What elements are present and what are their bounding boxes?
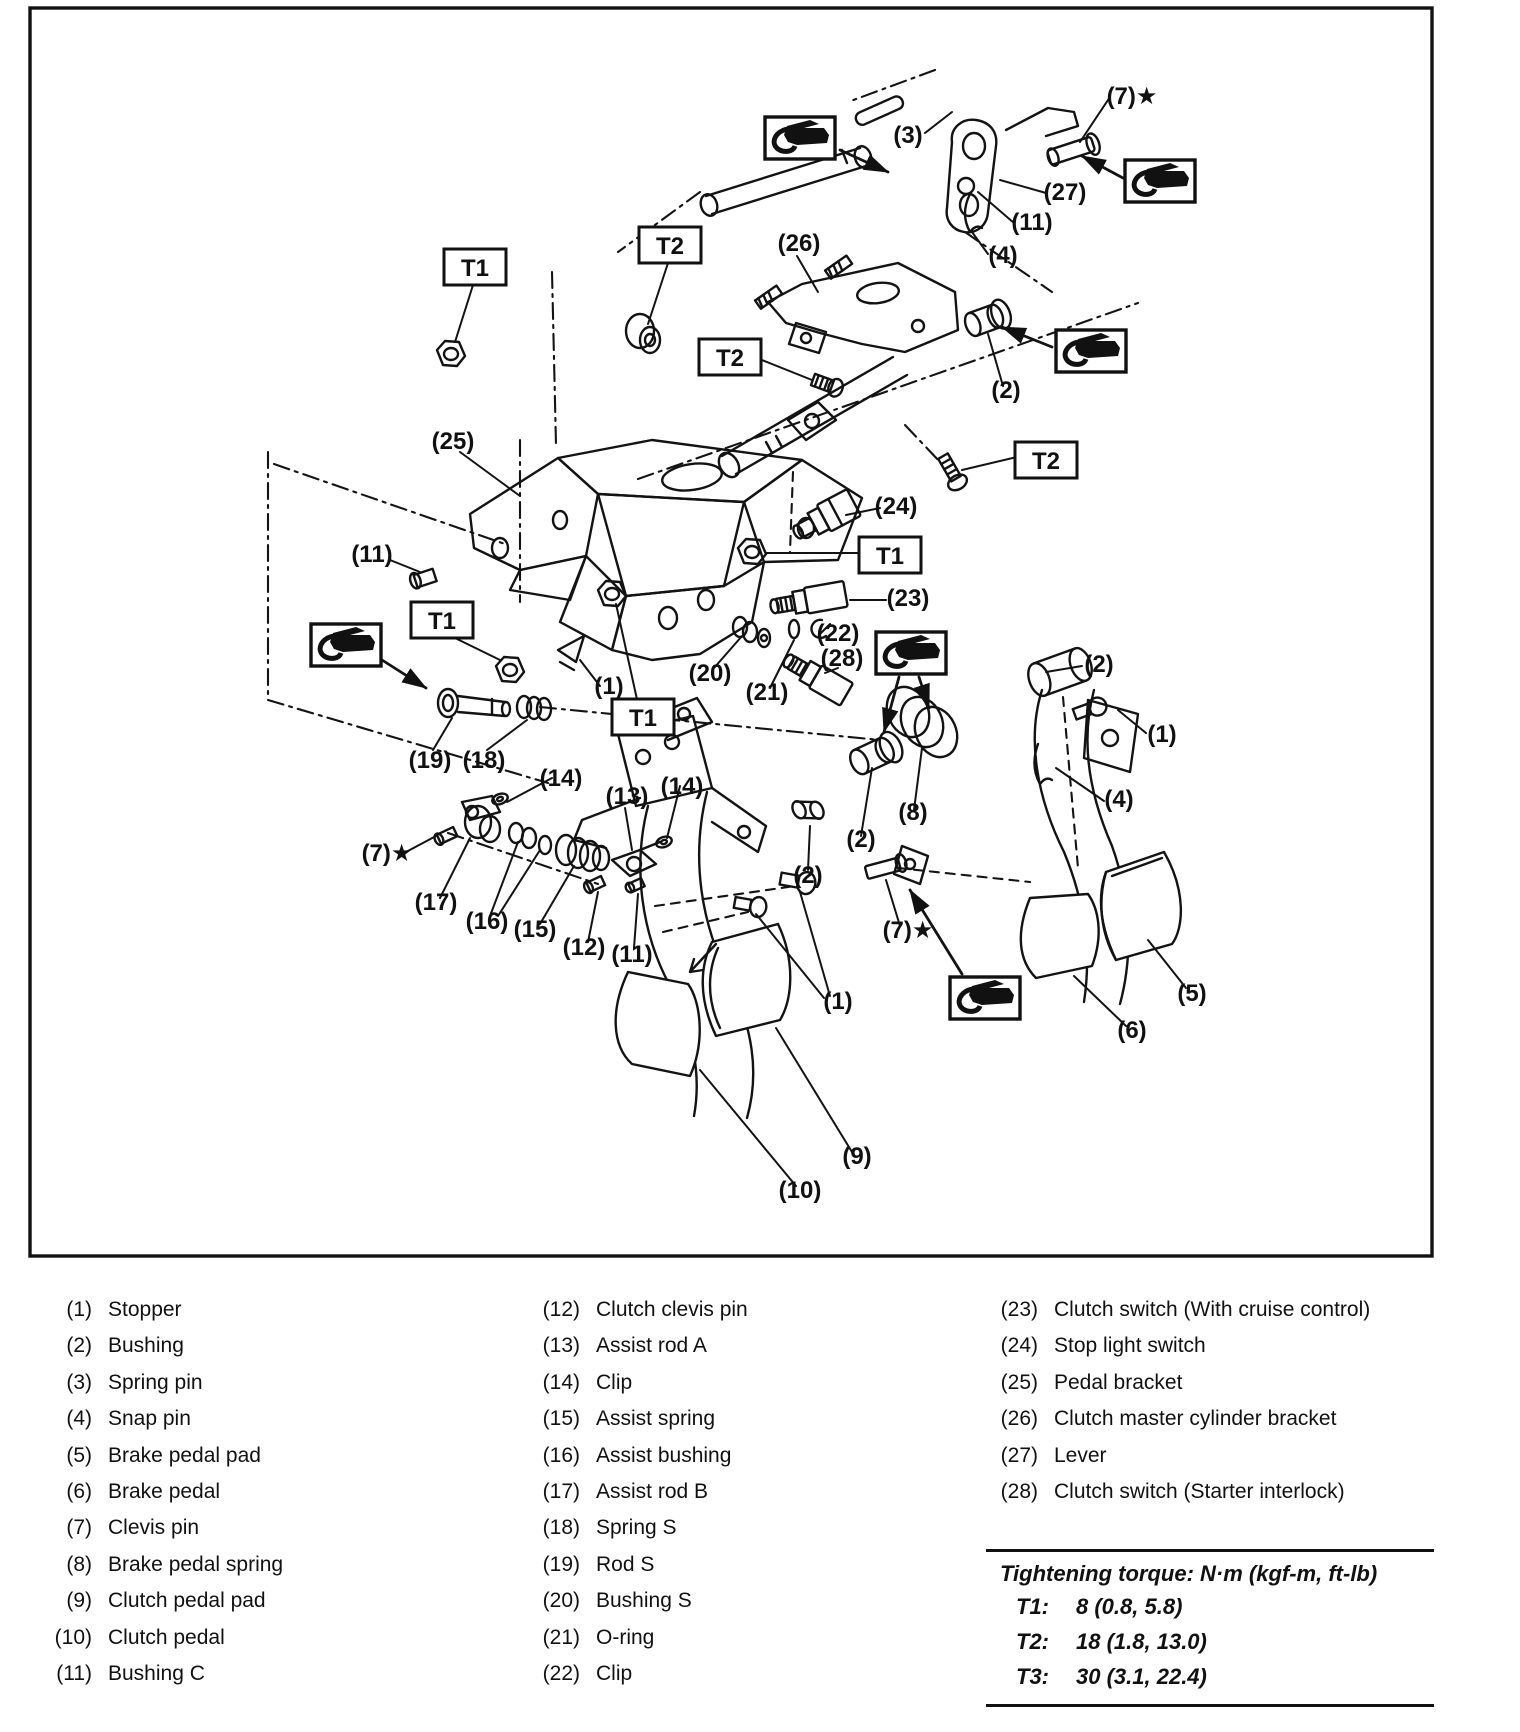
parts-list-item: (14)Clip — [528, 1365, 748, 1401]
part-name: Clutch pedal — [108, 1620, 225, 1656]
part-callout: (1) — [823, 988, 852, 1015]
part-callout: (11) — [1011, 209, 1052, 236]
part-callout: (13) — [606, 783, 649, 810]
torque-table: Tightening torque: N·m (kgf-m, ft-lb) T1… — [986, 1549, 1434, 1707]
part-number: (11) — [40, 1656, 92, 1692]
part-callout: (18) — [463, 747, 506, 774]
torque-id: T2: — [1016, 1624, 1064, 1659]
torque-ref-label: T2 — [716, 345, 744, 372]
part-number: (9) — [40, 1583, 92, 1619]
parts-list-column-3: (23)Clutch switch (With cruise control)(… — [986, 1292, 1370, 1510]
part-callout: (24) — [875, 493, 918, 520]
parts-list-item: (3)Spring pin — [40, 1365, 283, 1401]
part-name: Stopper — [108, 1292, 182, 1328]
part-callout: (4) — [988, 242, 1017, 269]
part-number: (8) — [40, 1547, 92, 1583]
part-name: Assist rod B — [596, 1474, 708, 1510]
part-number: (20) — [528, 1583, 580, 1619]
part-name: Brake pedal spring — [108, 1547, 283, 1583]
torque-row: T2:18 (1.8, 13.0) — [986, 1624, 1434, 1659]
part-callout: (1) — [594, 673, 623, 700]
part-number: (23) — [986, 1292, 1038, 1328]
part-name: Bushing — [108, 1328, 184, 1364]
part-number: (27) — [986, 1438, 1038, 1474]
parts-list-item: (26)Clutch master cylinder bracket — [986, 1401, 1370, 1437]
part-callout: (27) — [1044, 179, 1087, 206]
part-callout: (25) — [432, 428, 475, 455]
parts-list-item: (18)Spring S — [528, 1510, 748, 1546]
part-callout: (15) — [514, 916, 557, 943]
part-callout: (14) — [661, 773, 704, 800]
part-callout: (28) — [821, 645, 864, 672]
part-number: (6) — [40, 1474, 92, 1510]
part-callout: (23) — [887, 585, 930, 612]
torque-id: T1: — [1016, 1589, 1064, 1624]
parts-list-item: (28)Clutch switch (Starter interlock) — [986, 1474, 1370, 1510]
torque-table-rows: T1:8 (0.8, 5.8)T2:18 (1.8, 13.0)T3:30 (3… — [986, 1589, 1434, 1694]
part-name: Assist rod A — [596, 1328, 707, 1364]
part-callout: (10) — [779, 1177, 822, 1204]
part-callout: (7)★ — [883, 917, 934, 944]
part-number: (12) — [528, 1292, 580, 1328]
part-name: Bushing C — [108, 1656, 205, 1692]
part-callout: (21) — [746, 679, 789, 706]
parts-list-item: (1)Stopper — [40, 1292, 283, 1328]
part-name: Clutch pedal pad — [108, 1583, 266, 1619]
parts-list-item: (16)Assist bushing — [528, 1438, 748, 1474]
figure-border — [30, 8, 1432, 1256]
part-callout: (11) — [611, 941, 652, 968]
part-callout: (5) — [1177, 980, 1206, 1007]
part-number: (25) — [986, 1365, 1038, 1401]
parts-list-item: (4)Snap pin — [40, 1401, 283, 1437]
parts-list-item: (24)Stop light switch — [986, 1328, 1370, 1364]
part-callout: (2) — [1084, 651, 1113, 678]
part-name: Pedal bracket — [1054, 1365, 1182, 1401]
part-name: Clip — [596, 1656, 632, 1692]
part-callout: (8) — [898, 799, 927, 826]
parts-list-item: (17)Assist rod B — [528, 1474, 748, 1510]
parts-list-item: (23)Clutch switch (With cruise control) — [986, 1292, 1370, 1328]
part-number: (18) — [528, 1510, 580, 1546]
part-number: (26) — [986, 1401, 1038, 1437]
parts-list-item: (25)Pedal bracket — [986, 1365, 1370, 1401]
torque-id: T3: — [1016, 1659, 1064, 1694]
part-callout: (17) — [415, 889, 458, 916]
part-number: (19) — [528, 1547, 580, 1583]
parts-list-column-2: (12)Clutch clevis pin(13)Assist rod A(14… — [528, 1292, 748, 1692]
part-number: (28) — [986, 1474, 1038, 1510]
part-number: (15) — [528, 1401, 580, 1437]
grease-icon — [765, 117, 835, 159]
part-number: (7) — [40, 1510, 92, 1546]
part-number: (16) — [528, 1438, 580, 1474]
parts-list-item: (5)Brake pedal pad — [40, 1438, 283, 1474]
part-name: Snap pin — [108, 1401, 191, 1437]
part-callout: (7)★ — [1107, 83, 1158, 110]
grease-icon — [311, 624, 381, 666]
part-name: Clutch master cylinder bracket — [1054, 1401, 1336, 1437]
grease-icon — [876, 632, 946, 674]
parts-list-item: (12)Clutch clevis pin — [528, 1292, 748, 1328]
parts-list-item: (27)Lever — [986, 1438, 1370, 1474]
part-name: Bushing S — [596, 1583, 692, 1619]
parts-list-item: (7)Clevis pin — [40, 1510, 283, 1546]
part-name: Rod S — [596, 1547, 654, 1583]
part-number: (4) — [40, 1401, 92, 1437]
part-callout: (3) — [893, 122, 922, 149]
parts-list-item: (2)Bushing — [40, 1328, 283, 1364]
part-name: Brake pedal pad — [108, 1438, 261, 1474]
torque-ref-label: T2 — [656, 233, 684, 260]
parts-list-item: (13)Assist rod A — [528, 1328, 748, 1364]
part-number: (22) — [528, 1656, 580, 1692]
part-number: (2) — [40, 1328, 92, 1364]
part-callout: (11) — [351, 541, 392, 568]
parts-list-item: (11)Bushing C — [40, 1656, 283, 1692]
grease-icon — [950, 977, 1020, 1019]
part-name: Spring S — [596, 1510, 677, 1546]
part-callout: (2) — [793, 862, 822, 889]
part-callout: (20) — [689, 660, 732, 687]
part-number: (5) — [40, 1438, 92, 1474]
torque-value: 30 (3.1, 22.4) — [1076, 1659, 1207, 1694]
parts-list-item: (9)Clutch pedal pad — [40, 1583, 283, 1619]
part-callout: (7)★ — [362, 840, 413, 867]
part-callout: (14) — [540, 765, 583, 792]
part-name: Lever — [1054, 1438, 1107, 1474]
part-callout: (1) — [1147, 721, 1176, 748]
torque-row: T3:30 (3.1, 22.4) — [986, 1659, 1434, 1694]
part-number: (24) — [986, 1328, 1038, 1364]
parts-list-item: (21)O-ring — [528, 1620, 748, 1656]
parts-list-item: (22)Clip — [528, 1656, 748, 1692]
part-name: Clutch switch (With cruise control) — [1054, 1292, 1370, 1328]
parts-list-item: (10)Clutch pedal — [40, 1620, 283, 1656]
manual-page: T1T2T2T2T1T1T1(3)(7)★(27)(11)(4)(26)(2)(… — [0, 0, 1520, 1732]
parts-list-column-1: (1)Stopper(2)Bushing(3)Spring pin(4)Snap… — [40, 1292, 283, 1692]
part-callout: (2) — [846, 826, 875, 853]
part-callout: (4) — [1104, 786, 1133, 813]
part-name: Spring pin — [108, 1365, 203, 1401]
part-name: Clutch clevis pin — [596, 1292, 748, 1328]
part-name: Assist bushing — [596, 1438, 731, 1474]
part-number: (10) — [40, 1620, 92, 1656]
part-callout: (2) — [991, 377, 1020, 404]
part-name: Assist spring — [596, 1401, 715, 1437]
part-number: (14) — [528, 1365, 580, 1401]
parts-list-item: (8)Brake pedal spring — [40, 1547, 283, 1583]
part-name: Clevis pin — [108, 1510, 199, 1546]
torque-ref-label: T2 — [1032, 448, 1060, 475]
part-callout: (12) — [563, 934, 606, 961]
part-number: (1) — [40, 1292, 92, 1328]
part-callout: (6) — [1117, 1017, 1146, 1044]
parts-list-item: (6)Brake pedal — [40, 1474, 283, 1510]
part-callout: (9) — [842, 1143, 871, 1170]
parts-list-item: (19)Rod S — [528, 1547, 748, 1583]
torque-ref-label: T1 — [461, 255, 489, 282]
part-callout: (26) — [778, 230, 821, 257]
torque-ref-label: T1 — [876, 543, 904, 570]
part-callout: (19) — [409, 747, 452, 774]
torque-value: 18 (1.8, 13.0) — [1076, 1624, 1207, 1659]
part-name: O-ring — [596, 1620, 654, 1656]
torque-row: T1:8 (0.8, 5.8) — [986, 1589, 1434, 1624]
torque-ref-label: T1 — [629, 705, 657, 732]
part-number: (13) — [528, 1328, 580, 1364]
grease-icon — [1056, 330, 1126, 372]
parts-list-item: (15)Assist spring — [528, 1401, 748, 1437]
part-callout: (22) — [817, 620, 860, 647]
part-number: (21) — [528, 1620, 580, 1656]
part-callout: (16) — [466, 908, 509, 935]
grease-icon — [1125, 160, 1195, 202]
part-name: Stop light switch — [1054, 1328, 1206, 1364]
part-name: Clutch switch (Starter interlock) — [1054, 1474, 1345, 1510]
part-number: (3) — [40, 1365, 92, 1401]
part-number: (17) — [528, 1474, 580, 1510]
torque-value: 8 (0.8, 5.8) — [1076, 1589, 1182, 1624]
part-name: Brake pedal — [108, 1474, 220, 1510]
parts-list-item: (20)Bushing S — [528, 1583, 748, 1619]
torque-table-title: Tightening torque: N·m (kgf-m, ft-lb) — [986, 1559, 1434, 1589]
part-name: Clip — [596, 1365, 632, 1401]
torque-ref-label: T1 — [428, 608, 456, 635]
